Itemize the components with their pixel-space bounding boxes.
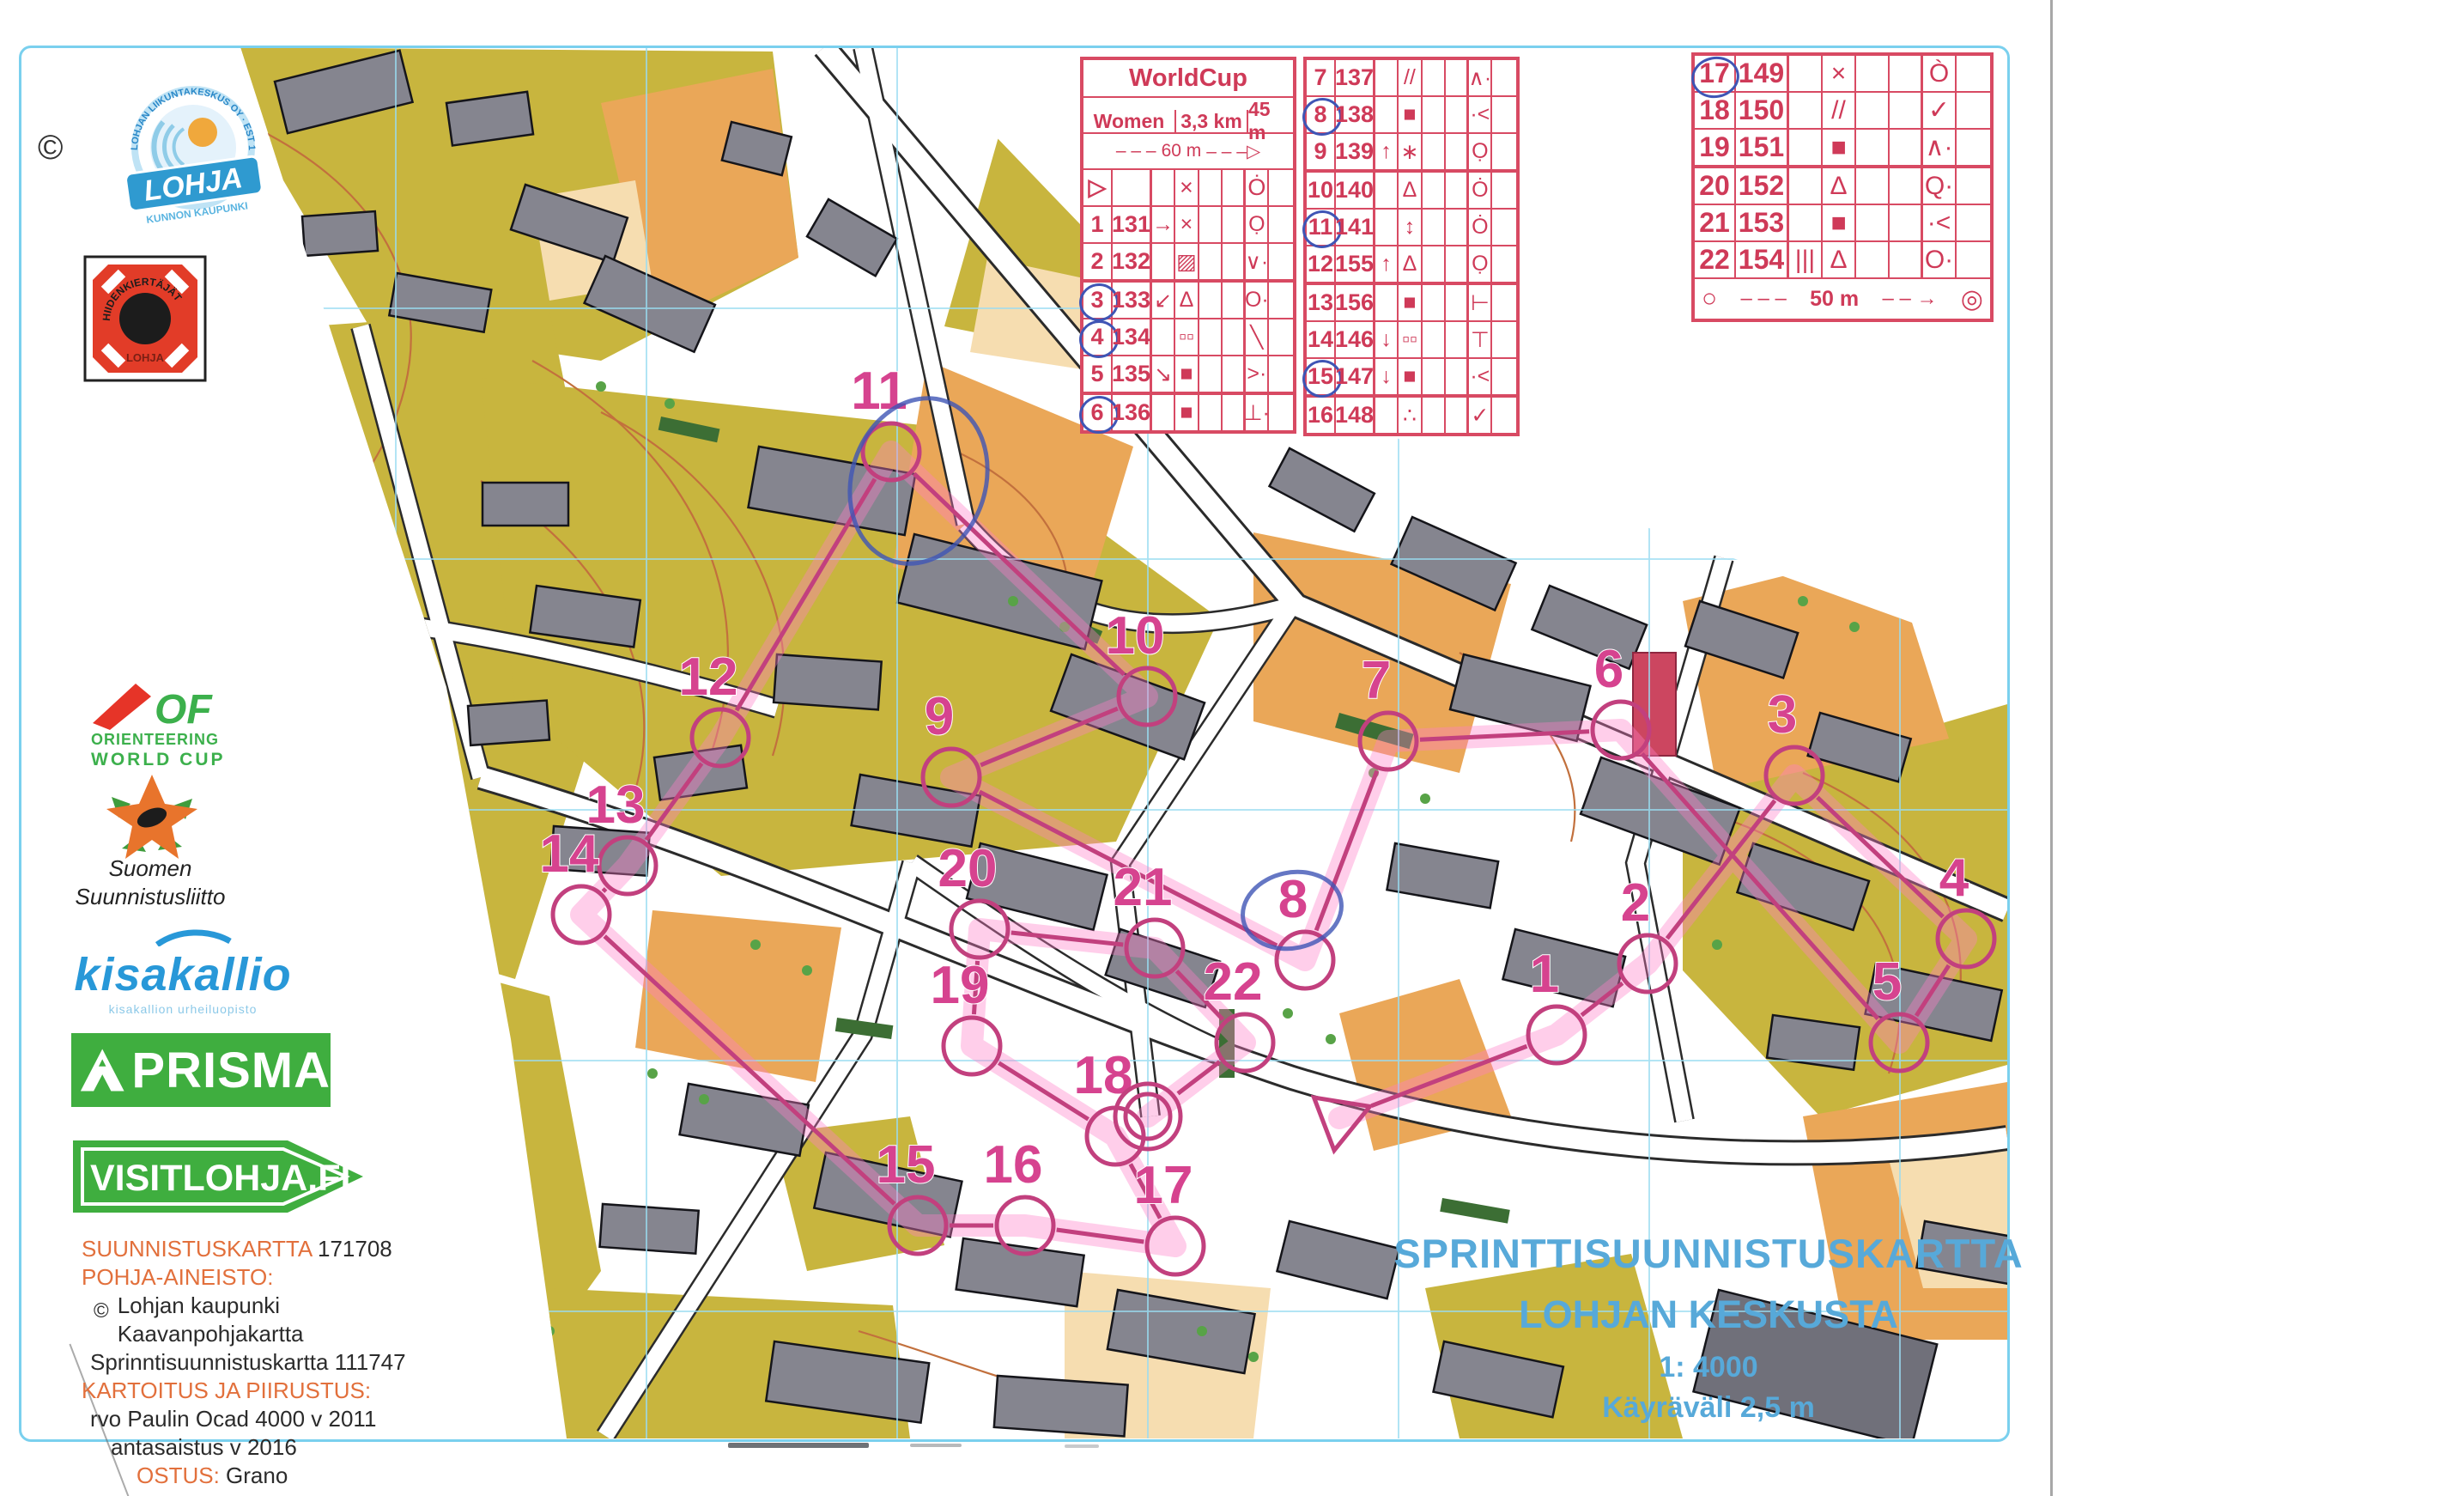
- control-row: 15147↓■·<: [1307, 359, 1516, 398]
- control-cell-a: 12: [1307, 246, 1336, 282]
- course-class: Women: [1083, 110, 1176, 133]
- control-cell-g: ∨·: [1246, 244, 1269, 279]
- control-cell-g: ⊢: [1469, 285, 1492, 320]
- control-cell-g: Q·: [1923, 168, 1957, 204]
- control-cell-a: 18: [1695, 93, 1736, 128]
- control-cell-d: ∴: [1399, 398, 1422, 433]
- control-cell-a: 22: [1695, 242, 1736, 277]
- control-cell-c: [1789, 205, 1823, 240]
- finish-distance-row: ○ – – – 50 m – – → ◎: [1695, 277, 1990, 319]
- control-cell-c: |||: [1789, 242, 1823, 277]
- control-cell-a: 17: [1695, 56, 1736, 91]
- control-cell-h: [1957, 168, 1990, 204]
- iof-mark: OF: [155, 687, 213, 733]
- control-cell-b: [1113, 170, 1152, 205]
- control-cell-d: ∗: [1399, 134, 1422, 169]
- event-name: WorldCup: [1083, 60, 1293, 98]
- map-area-title: LOHJAN KESKUSTA: [1391, 1292, 2026, 1337]
- credit-survey1: rvo Paulin Ocad 4000 v 2011: [90, 1405, 528, 1433]
- control-cell-h: [1492, 285, 1515, 320]
- control-cell-h: [1957, 130, 1990, 165]
- control-rows: 17149×Ò18150//✓19151■∧·20152ΔQ·21153■·<2…: [1695, 56, 1990, 277]
- control-row: 11141↕Ȯ: [1307, 210, 1516, 246]
- control-cell-e: [1423, 210, 1446, 245]
- control-cell-e: [1423, 398, 1446, 433]
- control-cell-b: 148: [1336, 398, 1375, 433]
- control-cell-e: [1856, 93, 1890, 128]
- control-cell-a: 6: [1083, 395, 1113, 430]
- course-header: Women 3,3 km 45 m: [1083, 98, 1293, 134]
- ssl-star-logo: [96, 773, 208, 867]
- control-cell-c: [1789, 168, 1823, 204]
- control-cell-c: [1375, 173, 1399, 208]
- control-cell-f: [1890, 93, 1923, 128]
- control-cell-e: [1423, 322, 1446, 357]
- iof-world-cup-logo: OF ORIENTEERING WORLD CUP: [86, 677, 249, 771]
- control-cell-h: [1492, 359, 1515, 394]
- control-cell-a: ▷: [1083, 170, 1113, 205]
- credit-base3: Sprinntisuunnistuskartta 111747: [90, 1348, 528, 1377]
- ssl-line1: Suomen: [52, 854, 249, 883]
- scan-smudge: [728, 1443, 869, 1448]
- control-cell-e: [1423, 359, 1446, 394]
- control-row: 21153■·<: [1695, 205, 1990, 242]
- control-cell-d: ■: [1399, 359, 1422, 394]
- control-cell-a: 19: [1695, 130, 1736, 165]
- control-cell-g: O·: [1923, 242, 1957, 277]
- control-cell-g: ∧·: [1469, 60, 1492, 95]
- iof-line2: WORLD CUP: [91, 750, 226, 769]
- control-cell-f: [1446, 359, 1469, 394]
- control-cell-c: [1789, 93, 1823, 128]
- control-cell-f: [1446, 60, 1469, 95]
- control-cell-g: Ò: [1923, 56, 1957, 91]
- control-cell-b: 139: [1336, 134, 1375, 169]
- control-cell-b: 156: [1336, 285, 1375, 320]
- credit-map-number: 171708: [318, 1236, 392, 1262]
- scan-page-edge: [2050, 0, 2053, 1496]
- control-cell-c: [1789, 56, 1823, 91]
- control-cell-f: [1890, 56, 1923, 91]
- control-cell-d: ■: [1399, 97, 1422, 132]
- kisakallio-logo: kisakallio kisakallion urheiluopisto: [67, 929, 299, 1016]
- control-cell-c: ↓: [1375, 359, 1399, 394]
- control-cell-a: 4: [1083, 319, 1113, 355]
- control-cell-e: [1199, 356, 1223, 392]
- kisakallio-sub: kisakallion urheiluopisto: [67, 1002, 299, 1016]
- control-cell-b: 153: [1736, 205, 1789, 240]
- control-row: 17149×Ò: [1695, 56, 1990, 93]
- control-cell-a: 9: [1307, 134, 1336, 169]
- control-cell-c: [1375, 97, 1399, 132]
- credit-print-label: OSTUS:: [137, 1463, 220, 1488]
- control-cell-f: [1446, 210, 1469, 245]
- control-cell-g: ·<: [1469, 359, 1492, 394]
- control-row: 7137//∧·: [1307, 60, 1516, 97]
- control-cell-h: [1492, 173, 1515, 208]
- control-cell-e: [1856, 168, 1890, 204]
- control-row: 4134▫▫╲: [1083, 319, 1293, 356]
- lohja-city-logo: LOHJAN LIIKUNTAKESKUS OY · EST 1980 LOHJ…: [112, 69, 283, 232]
- course-length: 3,3 km: [1176, 110, 1248, 133]
- control-cell-a: 20: [1695, 168, 1736, 204]
- finish-dash1: – – –: [1740, 287, 1786, 311]
- control-cell-c: [1375, 398, 1399, 433]
- control-cell-f: [1223, 244, 1246, 279]
- control-row: 10140ΔȮ: [1307, 173, 1516, 210]
- control-row: 1131→×Ọ: [1083, 207, 1293, 244]
- control-cell-d: ■: [1399, 285, 1422, 320]
- control-cell-f: [1890, 242, 1923, 277]
- map-title-block: SPRINTTISUUNNISTUSKARTTA LOHJAN KESKUSTA…: [1391, 1230, 2026, 1425]
- course-climb: 45 m: [1248, 98, 1293, 144]
- finish-distance: 50 m: [1810, 287, 1859, 312]
- control-cell-g: ╲: [1246, 319, 1269, 355]
- scan-smudge: [1065, 1444, 1099, 1448]
- control-cell-e: [1423, 97, 1446, 132]
- control-cell-a: 2: [1083, 244, 1113, 279]
- visitlohja-sign: VISITLOHJA.FI: [71, 1139, 367, 1214]
- control-cell-g: Ọ: [1246, 207, 1269, 242]
- control-cell-h: [1269, 170, 1292, 205]
- control-cell-f: [1223, 319, 1246, 355]
- contour-interval: Käyräväli 2,5 m: [1391, 1391, 2026, 1425]
- control-cell-h: [1269, 283, 1292, 318]
- control-cell-g: ✓: [1469, 398, 1492, 433]
- iof-swoosh: [93, 684, 151, 730]
- control-cell-d: ▫▫: [1175, 319, 1199, 355]
- control-cell-h: [1269, 356, 1292, 392]
- control-cell-e: [1423, 246, 1446, 282]
- control-cell-b: 132: [1113, 244, 1152, 279]
- credit-survey2: antasaistus v 2016: [111, 1433, 528, 1462]
- control-cell-a: 1: [1083, 207, 1113, 242]
- map-credits: SUUNNISTUSKARTTA 171708 POHJA-AINEISTO: …: [82, 1235, 528, 1490]
- control-row: 3133↙ΔO·: [1083, 283, 1293, 319]
- control-cell-e: [1423, 285, 1446, 320]
- control-row: 8138■·<: [1307, 97, 1516, 134]
- control-cell-d: ▨: [1175, 244, 1199, 279]
- control-cell-b: 131: [1113, 207, 1152, 242]
- control-cell-e: [1423, 173, 1446, 208]
- control-cell-c: [1152, 395, 1175, 430]
- start-row: ▷×Ȯ: [1083, 170, 1293, 207]
- control-cell-c: ↑: [1375, 246, 1399, 282]
- prisma-label: PRISMA: [131, 1042, 331, 1099]
- control-cell-a: 16: [1307, 398, 1336, 433]
- control-cell-b: 150: [1736, 93, 1789, 128]
- control-cell-a: 7: [1307, 60, 1336, 95]
- control-cell-c: ↙: [1152, 283, 1175, 318]
- control-row: 6136■⊥·: [1083, 395, 1293, 430]
- control-cell-c: [1152, 244, 1175, 279]
- control-cell-f: [1446, 246, 1469, 282]
- credit-base1: Lohjan kaupunki: [118, 1292, 304, 1320]
- control-cell-d: Δ: [1399, 173, 1422, 208]
- control-cell-h: [1492, 97, 1515, 132]
- hiidenkiertajat-sub: LOHJA: [126, 351, 165, 364]
- control-cell-e: [1199, 207, 1223, 242]
- control-cell-h: [1492, 210, 1515, 245]
- control-cell-d: ×: [1175, 170, 1199, 205]
- control-row: 5135↘■>·: [1083, 356, 1293, 395]
- control-cell-g: Ọ: [1469, 246, 1492, 282]
- control-cell-b: 138: [1336, 97, 1375, 132]
- control-cell-c: [1789, 130, 1823, 165]
- control-cell-e: [1856, 56, 1890, 91]
- control-cell-b: 151: [1736, 130, 1789, 165]
- control-cell-a: 15: [1307, 359, 1336, 394]
- control-cell-h: [1957, 93, 1990, 128]
- control-cell-b: 152: [1736, 168, 1789, 204]
- control-cell-e: [1856, 130, 1890, 165]
- control-cell-e: [1199, 283, 1223, 318]
- control-row: 12155↑ΔỌ: [1307, 246, 1516, 285]
- credit-survey-label: KARTOITUS JA PIIRUSTUS:: [82, 1377, 528, 1405]
- control-cell-f: [1223, 395, 1246, 430]
- start-distance: 60 m: [1162, 141, 1202, 161]
- control-cell-f: [1890, 205, 1923, 240]
- control-row: 18150//✓: [1695, 93, 1990, 130]
- finish-dash2: – – →: [1882, 287, 1937, 311]
- control-cell-a: 8: [1307, 97, 1336, 132]
- control-cell-a: 10: [1307, 173, 1336, 208]
- control-cell-f: [1223, 356, 1246, 392]
- control-cell-b: 154: [1736, 242, 1789, 277]
- control-cell-e: [1199, 395, 1223, 430]
- control-row: 16148∴✓: [1307, 398, 1516, 433]
- control-cell-b: 135: [1113, 356, 1152, 392]
- control-cell-d: //: [1823, 93, 1856, 128]
- control-row: 9139↑∗Ọ: [1307, 134, 1516, 173]
- control-cell-e: [1856, 205, 1890, 240]
- control-cell-a: 5: [1083, 356, 1113, 392]
- control-row: 14146↓▫▫⊤: [1307, 322, 1516, 359]
- control-cell-h: [1269, 395, 1292, 430]
- control-cell-e: [1856, 242, 1890, 277]
- control-descriptions-block-3: 17149×Ò18150//✓19151■∧·20152ΔQ·21153■·<2…: [1691, 52, 1994, 322]
- control-cell-h: [1269, 319, 1292, 355]
- control-cell-b: 140: [1336, 173, 1375, 208]
- control-cell-h: [1957, 242, 1990, 277]
- map-type-title: SPRINTTISUUNNISTUSKARTTA: [1391, 1230, 2026, 1277]
- control-cell-d: //: [1399, 60, 1422, 95]
- scan-smudge: [910, 1444, 962, 1447]
- control-row: 22154|||ΔO·: [1695, 242, 1990, 277]
- scanned-orienteering-map-page: 12345678910111213141516171819202122 © LO…: [0, 0, 2464, 1496]
- control-cell-e: [1199, 244, 1223, 279]
- control-cell-d: ■: [1175, 356, 1199, 392]
- control-cell-h: [1269, 207, 1292, 242]
- control-cell-d: ↕: [1399, 210, 1422, 245]
- control-cell-e: [1199, 319, 1223, 355]
- control-row: 2132▨∨·: [1083, 244, 1293, 283]
- control-cell-d: Δ: [1823, 168, 1856, 204]
- control-rows: 7137//∧·8138■·<9139↑∗Ọ10140ΔȮ11141↕Ȯ1215…: [1307, 60, 1516, 433]
- control-cell-h: [1492, 246, 1515, 282]
- control-cell-f: [1446, 285, 1469, 320]
- control-cell-f: [1223, 170, 1246, 205]
- control-cell-d: ×: [1175, 207, 1199, 242]
- copyright-symbol: ©: [38, 129, 63, 167]
- control-cell-f: [1446, 398, 1469, 433]
- start-dash: – – –: [1116, 141, 1156, 161]
- control-cell-b: 136: [1113, 395, 1152, 430]
- control-cell-c: [1152, 319, 1175, 355]
- control-cell-c: [1152, 170, 1175, 205]
- control-cell-g: Ȯ: [1469, 210, 1492, 245]
- control-cell-f: [1223, 207, 1246, 242]
- control-rows: ▷×Ȯ1131→×Ọ2132▨∨·3133↙ΔO·4134▫▫╲5135↘■>·…: [1083, 170, 1293, 430]
- control-cell-g: Ȯ: [1246, 170, 1269, 205]
- control-cell-c: ↑: [1375, 134, 1399, 169]
- control-cell-f: [1446, 173, 1469, 208]
- control-cell-c: ↘: [1152, 356, 1175, 392]
- control-cell-h: [1492, 322, 1515, 357]
- control-row: 20152ΔQ·: [1695, 168, 1990, 205]
- control-cell-e: [1199, 170, 1223, 205]
- control-cell-d: Δ: [1823, 242, 1856, 277]
- control-cell-b: 137: [1336, 60, 1375, 95]
- control-cell-c: [1375, 285, 1399, 320]
- control-cell-h: [1269, 244, 1292, 279]
- control-cell-g: >·: [1246, 356, 1269, 392]
- control-cell-g: ·<: [1923, 205, 1957, 240]
- credit-map-number-label: SUUNNISTUSKARTTA: [82, 1236, 312, 1262]
- ssl-name: Suomen Suunnistusliitto: [52, 854, 249, 911]
- prisma-triangle-icon: [80, 1043, 124, 1097]
- credit-base-label: POHJA-AINEISTO:: [82, 1263, 528, 1292]
- control-cell-d: ■: [1823, 205, 1856, 240]
- control-cell-g: ⊤: [1469, 322, 1492, 357]
- control-cell-f: [1446, 97, 1469, 132]
- control-cell-g: Ȯ: [1469, 173, 1492, 208]
- control-cell-d: ■: [1175, 395, 1199, 430]
- credit-print-value: Grano: [226, 1463, 288, 1488]
- control-cell-d: Δ: [1175, 283, 1199, 318]
- control-cell-h: [1492, 398, 1515, 433]
- control-cell-g: Ọ: [1469, 134, 1492, 169]
- finish-start-circle: ○: [1702, 284, 1717, 313]
- control-cell-e: [1423, 60, 1446, 95]
- control-cell-a: 14: [1307, 322, 1336, 357]
- control-cell-d: ×: [1823, 56, 1856, 91]
- control-cell-b: 133: [1113, 283, 1152, 318]
- prisma-logo: PRISMA: [71, 1033, 331, 1107]
- ssl-line2: Suunnistusliitto: [52, 883, 249, 911]
- kisakallio-arc: [67, 929, 299, 946]
- control-cell-g: ✓: [1923, 93, 1957, 128]
- control-row: 13156■⊢: [1307, 285, 1516, 322]
- control-cell-g: ∧·: [1923, 130, 1957, 165]
- kisakallio-title: kisakallio: [67, 951, 299, 999]
- control-cell-g: ⊥·: [1246, 395, 1269, 430]
- control-cell-d: ▫▫: [1399, 322, 1422, 357]
- control-cell-c: [1375, 210, 1399, 245]
- control-cell-f: [1223, 283, 1246, 318]
- control-cell-b: 146: [1336, 322, 1375, 357]
- control-row: 19151■∧·: [1695, 130, 1990, 168]
- iof-line1: ORIENTEERING: [91, 731, 219, 748]
- control-descriptions-block-2: 7137//∧·8138■·<9139↑∗Ọ10140ΔȮ11141↕Ȯ1215…: [1303, 57, 1520, 436]
- visitlohja-label: VISITLOHJA.FI: [90, 1158, 350, 1199]
- control-cell-h: [1957, 205, 1990, 240]
- control-cell-g: ·<: [1469, 97, 1492, 132]
- control-cell-b: 141: [1336, 210, 1375, 245]
- credit-copyright: ©: [94, 1297, 109, 1325]
- control-cell-a: 11: [1307, 210, 1336, 245]
- control-cell-c: ↓: [1375, 322, 1399, 357]
- control-cell-a: 3: [1083, 283, 1113, 318]
- control-cell-f: [1890, 130, 1923, 165]
- control-cell-d: Δ: [1399, 246, 1422, 282]
- control-cell-b: 155: [1336, 246, 1375, 282]
- control-cell-e: [1423, 134, 1446, 169]
- control-cell-d: ■: [1823, 130, 1856, 165]
- start-arrow: – – –▷: [1206, 141, 1260, 162]
- control-cell-h: [1492, 134, 1515, 169]
- map-scale: 1: 4000: [1391, 1351, 2026, 1384]
- control-cell-g: O·: [1246, 283, 1269, 318]
- control-cell-b: 134: [1113, 319, 1152, 355]
- control-cell-h: [1492, 60, 1515, 95]
- hiidenkiertajat-logo: HIIDENKIERTÄJÄT LOHJA: [82, 254, 211, 392]
- finish-double-circle: ◎: [1961, 284, 1983, 314]
- control-cell-a: 21: [1695, 205, 1736, 240]
- control-cell-a: 13: [1307, 285, 1336, 320]
- credit-base2: Kaavanpohjakartta: [118, 1320, 304, 1348]
- control-cell-f: [1446, 322, 1469, 357]
- control-cell-b: 149: [1736, 56, 1789, 91]
- control-cell-f: [1446, 134, 1469, 169]
- control-cell-h: [1957, 56, 1990, 91]
- control-cell-f: [1890, 168, 1923, 204]
- control-cell-c: →: [1152, 207, 1175, 242]
- control-descriptions-block-1: WorldCup Women 3,3 km 45 m – – – 60 m – …: [1080, 57, 1296, 434]
- control-cell-b: 147: [1336, 359, 1375, 394]
- control-cell-c: [1375, 60, 1399, 95]
